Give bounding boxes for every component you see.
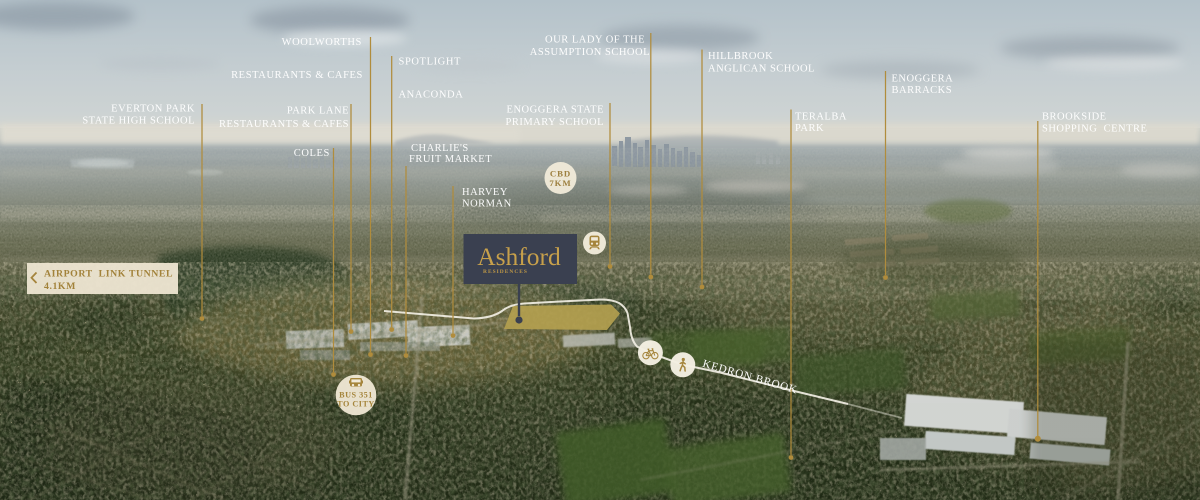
svg-text:ANACONDA: ANACONDA [399, 90, 464, 101]
svg-text:PARK LANE: PARK LANE [287, 106, 349, 117]
svg-text:HARVEY: HARVEY [462, 187, 508, 198]
svg-text:OUR LADY OF THE: OUR LADY OF THE [545, 35, 645, 46]
svg-text:TO CITY: TO CITY [337, 400, 375, 409]
svg-text:HILLBROOK: HILLBROOK [708, 51, 773, 62]
svg-text:ENOGGERA: ENOGGERA [892, 74, 954, 85]
svg-text:COLES: COLES [294, 148, 330, 159]
svg-text:TERALBA: TERALBA [795, 112, 847, 123]
svg-text:BROOKSIDE: BROOKSIDE [1042, 112, 1107, 123]
svg-text:SHOPPING CENTRE: SHOPPING CENTRE [1042, 124, 1147, 135]
svg-text:ASSUMPTION SCHOOL: ASSUMPTION SCHOOL [530, 47, 650, 58]
svg-text:RESTAURANTS & CAFES: RESTAURANTS & CAFES [231, 70, 363, 81]
svg-text:BUS 351: BUS 351 [339, 391, 373, 400]
svg-text:WOOLWORTHS: WOOLWORTHS [282, 37, 362, 48]
svg-text:RESIDENCES: RESIDENCES [483, 269, 528, 275]
svg-text:Ashford: Ashford [477, 242, 561, 271]
svg-text:4.1KM: 4.1KM [44, 281, 76, 292]
svg-text:RESTAURANTS & CAFES: RESTAURANTS & CAFES [219, 119, 349, 130]
svg-text:AIRPORT LINK TUNNEL: AIRPORT LINK TUNNEL [44, 269, 173, 280]
svg-text:ANGLICAN SCHOOL: ANGLICAN SCHOOL [708, 64, 815, 75]
svg-text:FRUIT MARKET: FRUIT MARKET [409, 154, 492, 165]
svg-text:ENOGGERA STATE: ENOGGERA STATE [507, 105, 604, 116]
svg-text:CHARLIE'S: CHARLIE'S [411, 143, 469, 154]
svg-text:7KM: 7KM [549, 178, 571, 188]
svg-text:NORMAN: NORMAN [462, 199, 512, 210]
svg-text:CBD: CBD [550, 169, 571, 179]
svg-text:PRIMARY SCHOOL: PRIMARY SCHOOL [505, 117, 604, 128]
svg-text:SPOTLIGHT: SPOTLIGHT [399, 57, 462, 68]
svg-text:STATE HIGH SCHOOL: STATE HIGH SCHOOL [82, 116, 195, 127]
svg-text:EVERTON PARK: EVERTON PARK [111, 104, 195, 115]
svg-text:BARRACKS: BARRACKS [892, 85, 953, 96]
svg-text:PARK: PARK [795, 123, 824, 134]
